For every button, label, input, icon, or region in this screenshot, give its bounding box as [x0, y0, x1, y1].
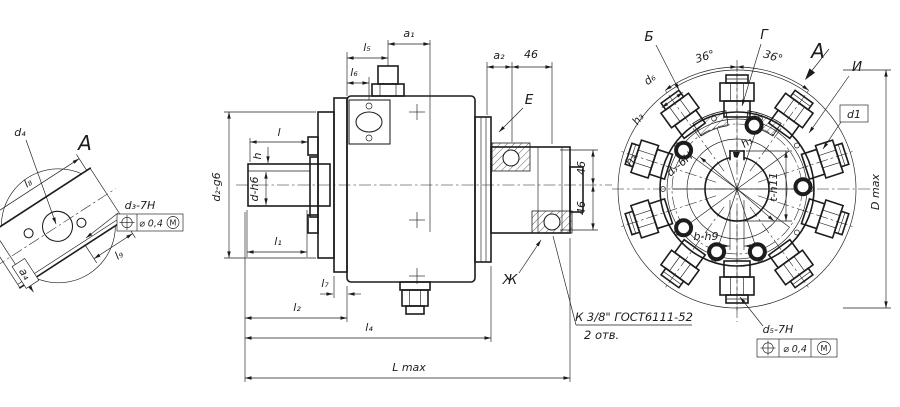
view-direction-label: A	[809, 39, 825, 63]
dim-d2-g6: d₂-g6	[210, 112, 229, 258]
center-marks	[409, 104, 425, 284]
top-fitting	[372, 66, 404, 96]
svg-text:t-h11: t-h11	[767, 172, 780, 201]
svg-text:l₂: l₂	[293, 301, 301, 314]
dim-l1: l₁	[247, 235, 307, 252]
dim-d-h6: d-h6	[248, 172, 266, 205]
bottom-fitting	[400, 282, 430, 314]
rear-section	[475, 117, 583, 262]
view-a-tolerance-frame: ⌀ 0,4 M	[117, 214, 183, 231]
zh-leader	[519, 240, 541, 273]
socket-bolt	[709, 244, 724, 259]
socket-bolt	[795, 179, 810, 194]
name-plate-oval	[356, 112, 382, 132]
view-a-title: A	[76, 131, 92, 155]
socket-bolt	[676, 220, 691, 235]
svg-text:l₈: l₈	[21, 175, 35, 190]
svg-text:d1: d1	[847, 108, 861, 121]
note-line2: 2 отв.	[584, 328, 619, 342]
dim-h3-upper: h₃	[630, 110, 648, 127]
tolerance-value: ⌀ 0,4	[139, 219, 163, 230]
dim-L-max: L max	[245, 361, 570, 378]
drawing-sheet: A l₈ l₉ a₄	[0, 0, 900, 407]
dim-l7: l₇	[320, 277, 361, 294]
dim-46-right-bottom: 46	[575, 185, 593, 230]
svg-text:l₁: l₁	[274, 235, 281, 248]
socket-bolt	[750, 244, 765, 259]
technical-drawing: A l₈ l₉ a₄	[0, 0, 900, 407]
flange-hole	[794, 230, 799, 235]
name-plate	[349, 100, 390, 144]
callout-E: E	[525, 92, 534, 108]
angle-left: 36°	[694, 48, 716, 66]
material-condition-letter: M	[170, 219, 177, 228]
dim-l2: l₂	[245, 301, 347, 318]
material-condition-letter: M	[821, 344, 828, 353]
svg-text:46: 46	[575, 161, 588, 175]
front-view: Б Г 36° 36° A И d1 d₆ h₃ h₃ h₁ d₇-6H t-h…	[612, 27, 891, 357]
svg-text:D max: D max	[869, 174, 882, 210]
label-d4: d₄	[14, 126, 26, 139]
svg-text:l₉: l₉	[112, 247, 126, 262]
dim-l5: l₅	[347, 41, 388, 58]
label-G: Г	[760, 27, 769, 43]
shaft-collar	[310, 157, 318, 217]
socket-bolt	[747, 118, 762, 133]
svg-text:l: l	[277, 126, 280, 139]
dim-b-h9: b-h9	[694, 200, 762, 250]
tolerance-value: ⌀ 0,4	[783, 344, 807, 355]
svg-text:l₅: l₅	[363, 41, 370, 54]
callout-Zh: Ж	[502, 272, 518, 288]
note-line1: К 3/8" ГОСТ6111-52	[575, 310, 693, 324]
i-leader	[809, 76, 849, 133]
view-a: A l₈ l₉ a₄	[0, 126, 183, 321]
dim-l6: l₆	[347, 66, 369, 83]
d1-boxed-dim: d1	[823, 105, 868, 149]
label-I: И	[852, 59, 862, 75]
pump-body	[347, 96, 475, 284]
svg-text:l₄: l₄	[365, 321, 373, 334]
front-tolerance-frame: ⌀ 0,4 M	[757, 339, 837, 357]
svg-text:h: h	[251, 152, 264, 159]
svg-text:L max: L max	[392, 361, 426, 374]
dim-46-right-top: 46	[575, 150, 593, 185]
svg-text:d-h6: d-h6	[248, 177, 261, 202]
dim-a1: a₁	[388, 27, 430, 44]
label-B: Б	[644, 29, 653, 45]
dim-h: h	[251, 147, 268, 163]
svg-text:a₂: a₂	[493, 49, 505, 62]
dim-t-h11: t-h11	[740, 151, 792, 221]
angle-right: 36°	[762, 48, 784, 66]
svg-text:l₆: l₆	[350, 66, 358, 79]
dim-46-top: 46	[512, 48, 552, 67]
svg-text:d₆: d₆	[641, 70, 658, 88]
svg-text:46: 46	[575, 201, 588, 215]
e-leader	[499, 108, 523, 132]
label-d3-7H: d₃-7H	[125, 199, 156, 212]
junction-plate	[475, 117, 491, 262]
svg-text:l₇: l₇	[321, 277, 329, 290]
flange-hole	[794, 143, 799, 148]
svg-text:a₁: a₁	[403, 27, 414, 40]
d5-leader	[740, 297, 763, 326]
dim-l4: l₄	[245, 321, 491, 338]
svg-text:d₂-g6: d₂-g6	[210, 172, 223, 201]
side-view: a₁ l₅ l₆ a₂ 46 l h d-h6 d₂-g6 l₁ l₇	[210, 27, 693, 382]
dim-a2: a₂	[487, 49, 512, 67]
svg-text:46: 46	[524, 48, 538, 61]
label-d5-7H: d₅-7H	[763, 323, 794, 336]
dim-h1: h₁	[739, 134, 756, 151]
svg-text:b-h9: b-h9	[694, 230, 719, 243]
dim-l: l	[250, 126, 308, 142]
